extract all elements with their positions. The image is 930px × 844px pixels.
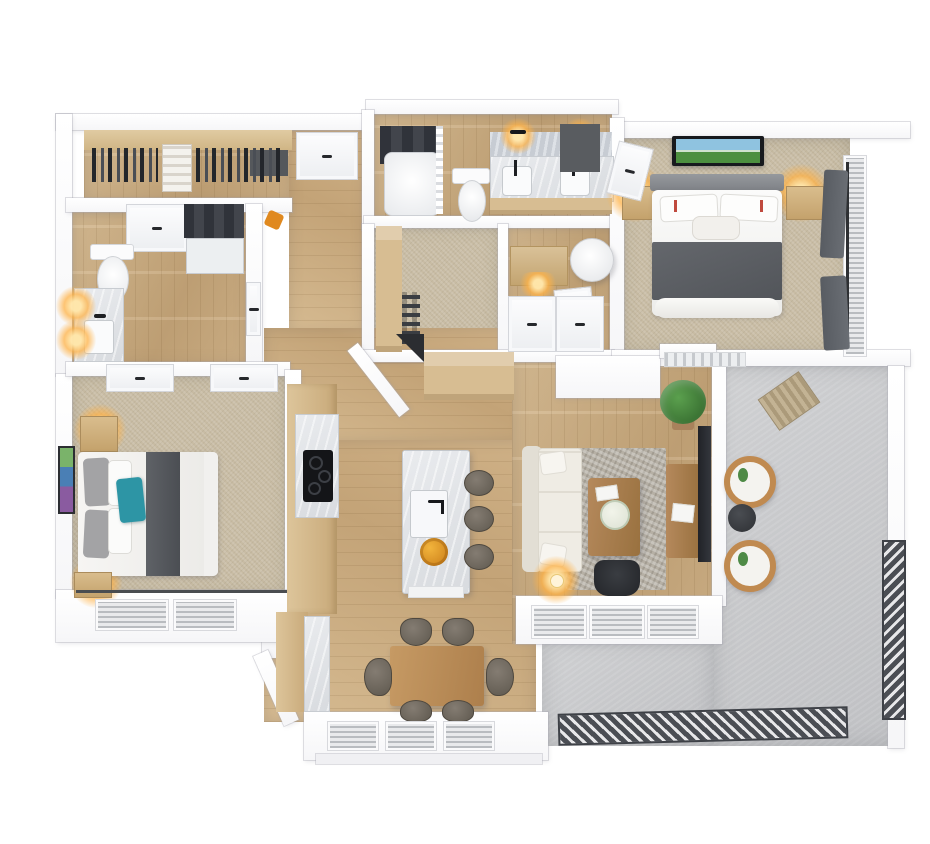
living-window-2 (590, 606, 644, 638)
vanity-sconce-glow-left (500, 118, 536, 154)
dining-chair-top-1 (400, 618, 432, 646)
sofa-pillow-1 (539, 450, 568, 475)
burner-1 (309, 456, 323, 470)
fruit-bowl-oranges (420, 538, 448, 566)
coat-on-floor (263, 209, 284, 230)
living-window-3 (648, 606, 698, 638)
mbed-nightstand-right (786, 186, 824, 220)
bathtub (384, 152, 440, 216)
dining-window-sill (316, 754, 542, 764)
island-base (408, 586, 464, 598)
mbed-headboard (650, 174, 784, 191)
bed2-dark-runner (146, 452, 180, 576)
mbath-toilet-bowl (458, 180, 486, 222)
burner-2 (318, 470, 331, 483)
sconce-bar-left (510, 130, 526, 134)
bath2-entry-door (246, 282, 261, 336)
mbed-center-pillow (692, 216, 740, 240)
wall-corridor-right (362, 110, 374, 230)
tv-master-screen (676, 139, 760, 163)
dining-chair-left (364, 658, 392, 696)
bed2-teal-pillow (116, 477, 146, 523)
wall-top-bath (366, 100, 618, 114)
mbed-gray-blanket (652, 242, 782, 300)
bath2-shower-base (186, 238, 244, 274)
bed2-closet-door-1 (106, 364, 174, 392)
chair-1-cushion-leaf (738, 468, 748, 482)
hanging-clothes-left (92, 148, 158, 182)
living-window-1 (532, 606, 586, 638)
burner-3 (308, 482, 321, 495)
dining-window-3 (444, 722, 494, 750)
balcony-chair-2 (724, 540, 776, 592)
bath2-shower-tile (184, 204, 244, 238)
mbed-pillow-accent-left (674, 200, 677, 212)
bed2-nightstand-top (80, 416, 118, 452)
pantry-shelves (424, 352, 514, 400)
bath2-faucet (94, 314, 106, 318)
floor-plan (0, 0, 930, 844)
floor-lamp (550, 574, 564, 588)
dining-window-1 (328, 722, 378, 750)
console-magazine (671, 503, 695, 523)
wall-tv (698, 426, 711, 562)
dining-chair-bottom-1 (400, 700, 432, 722)
vanity-cabinets (490, 198, 612, 214)
wall-mcloset-left (362, 224, 374, 354)
bed2-gray-pillow-1 (83, 457, 111, 506)
dining-chair-bottom-2 (442, 700, 474, 722)
vanity-faucet-left (514, 160, 517, 176)
dining-table (390, 646, 484, 706)
bar-stool-1 (464, 470, 494, 496)
wall-mcloset-right (498, 224, 508, 354)
entry-door (296, 132, 358, 180)
bed2-closet-door-2 (210, 364, 278, 392)
laundry-door-left (508, 296, 556, 352)
bed2-gray-pillow-2 (83, 509, 111, 558)
bed2-window-2 (174, 600, 236, 630)
mbed-foot-roll (655, 298, 779, 318)
bath2-double-door (126, 204, 188, 252)
mbed-pillow-accent-right (760, 200, 763, 212)
bath2-sconce-glow-2 (56, 320, 96, 360)
balcony-side-table (728, 504, 756, 532)
curtain-panel-top (820, 169, 849, 258)
island-sink (410, 490, 448, 538)
mcloset-shelf-panel (376, 226, 402, 352)
kitchen-lower-counter (304, 616, 330, 712)
hanging-clothes-right (196, 148, 284, 182)
bar-stool-3 (464, 544, 494, 570)
coffee-table-flowers (600, 500, 630, 530)
bed2-foot-fold (204, 452, 218, 576)
laundry-basket (570, 238, 614, 282)
potted-plant (660, 380, 706, 424)
utility-dark-niche (560, 124, 600, 172)
balcony-railing-right (882, 540, 906, 720)
island-faucet-drop (441, 500, 444, 514)
bar-stool-2 (464, 506, 494, 532)
dining-window-2 (386, 722, 436, 750)
bed2-window-track (76, 590, 288, 593)
vanity-sink-left (502, 166, 532, 196)
wall-living-top-block (556, 356, 660, 398)
wall-top-left (56, 114, 372, 130)
shower-curtain (436, 126, 443, 214)
chair-2-cushion-leaf (738, 552, 748, 566)
curtain-panel-bottom (820, 275, 850, 350)
bed2-window-1 (96, 600, 168, 630)
bed2-wall-art (58, 446, 75, 514)
balcony-chair-1 (724, 456, 776, 508)
bed2-nightstand-bottom (74, 572, 112, 598)
laundry-door-right (556, 296, 604, 352)
desk-chair (594, 560, 640, 596)
master-balcony-door (664, 352, 746, 367)
laundry-underglow (516, 272, 560, 296)
linen-shelf (162, 144, 192, 192)
dining-chair-top-2 (442, 618, 474, 646)
dining-chair-right (486, 658, 514, 696)
